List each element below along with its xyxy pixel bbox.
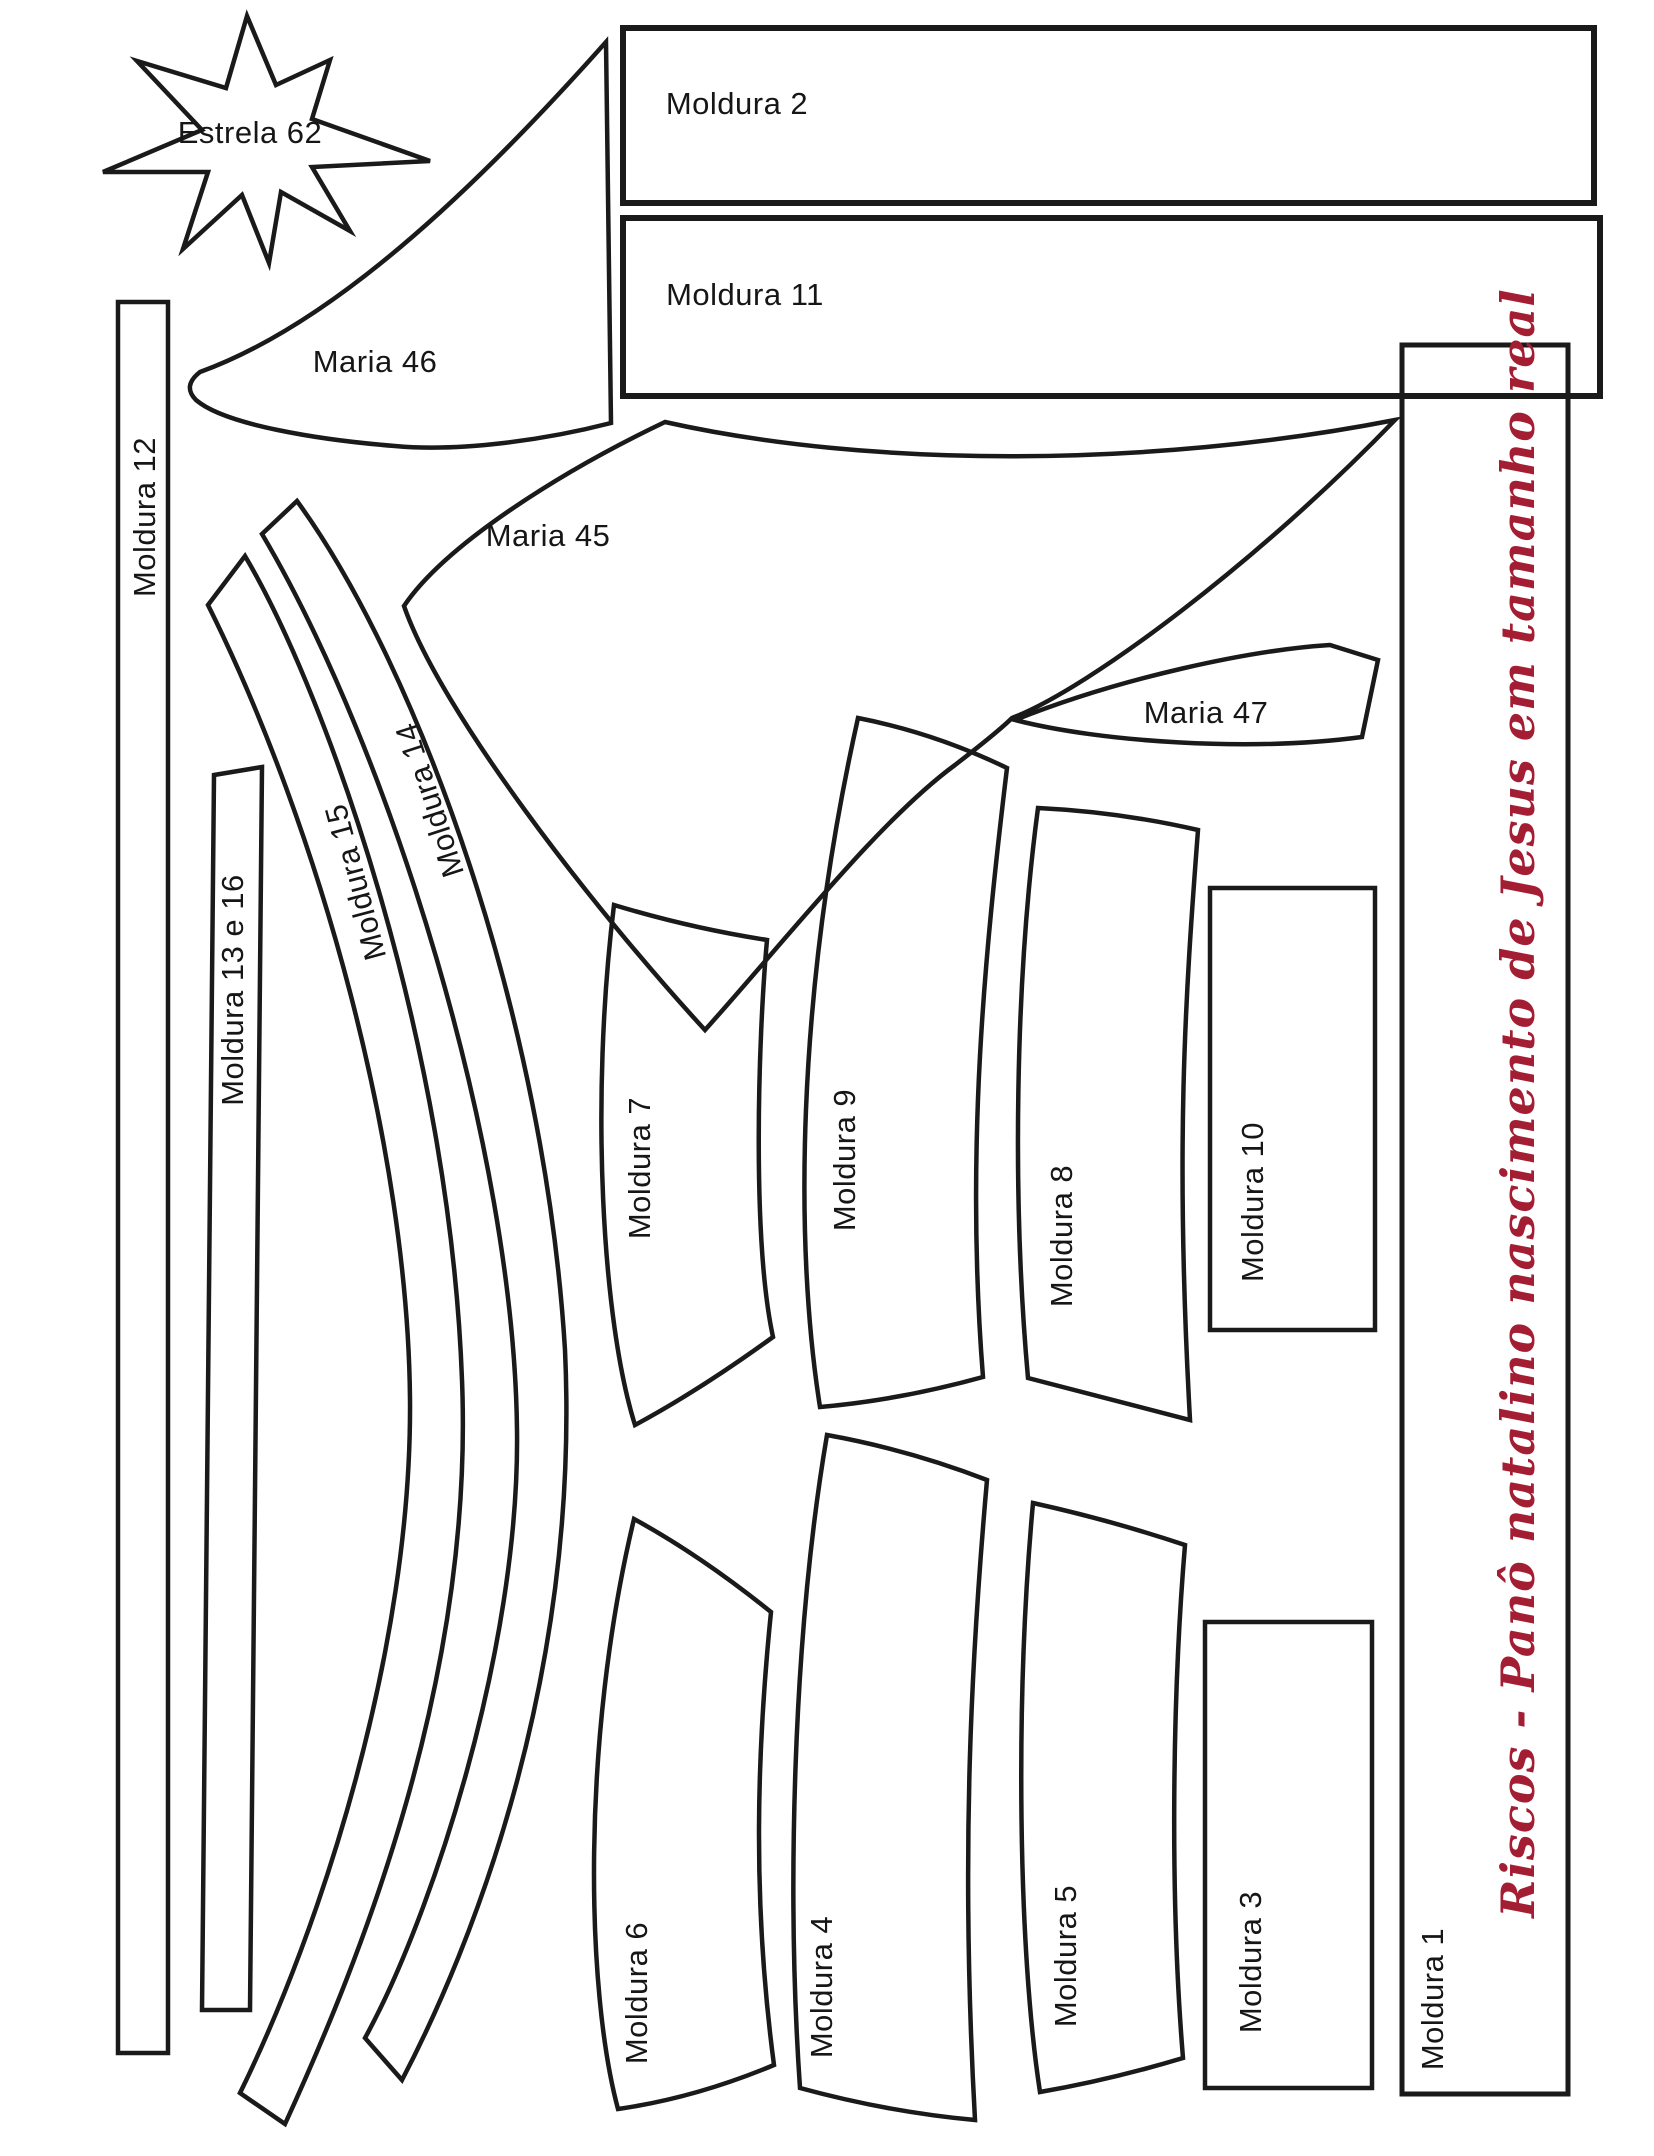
moldura-8-outline [1018, 808, 1198, 1420]
sheet-title: Riscos - Panô natalino nascimento de Jes… [1491, 288, 1545, 1918]
piece-label-moldura-1: Moldura 1 [1415, 1928, 1451, 2070]
piece-label-moldura-10: Moldura 10 [1235, 1122, 1271, 1282]
moldura-3-outline [1205, 1622, 1372, 2088]
piece-label-moldura-3: Moldura 3 [1233, 1891, 1269, 2033]
piece-label-maria-45: Maria 45 [486, 518, 611, 554]
piece-label-moldura-5: Moldura 5 [1048, 1885, 1084, 2027]
piece-label-moldura-13-16: Moldura 13 e 16 [215, 874, 251, 1106]
piece-label-moldura-7: Moldura 7 [622, 1097, 658, 1239]
piece-label-moldura-6: Moldura 6 [619, 1922, 655, 2064]
piece-label-estrela-62: Estrela 62 [178, 115, 323, 151]
pattern-sheet: Estrela 62 Moldura 2 Moldura 11 Maria 46… [0, 0, 1654, 2156]
piece-label-moldura-8: Moldura 8 [1044, 1165, 1080, 1307]
moldura-9-outline [804, 718, 1007, 1407]
piece-label-moldura-12: Moldura 12 [127, 437, 163, 597]
piece-label-moldura-11: Moldura 11 [666, 277, 824, 313]
piece-label-maria-47: Maria 47 [1144, 695, 1269, 731]
moldura-5-outline [1021, 1503, 1185, 2092]
piece-label-moldura-4: Moldura 4 [804, 1916, 840, 2058]
piece-label-moldura-9: Moldura 9 [827, 1089, 863, 1231]
piece-label-moldura-2: Moldura 2 [666, 86, 808, 122]
maria-46-outline [190, 42, 611, 448]
piece-label-maria-46: Maria 46 [313, 344, 438, 380]
